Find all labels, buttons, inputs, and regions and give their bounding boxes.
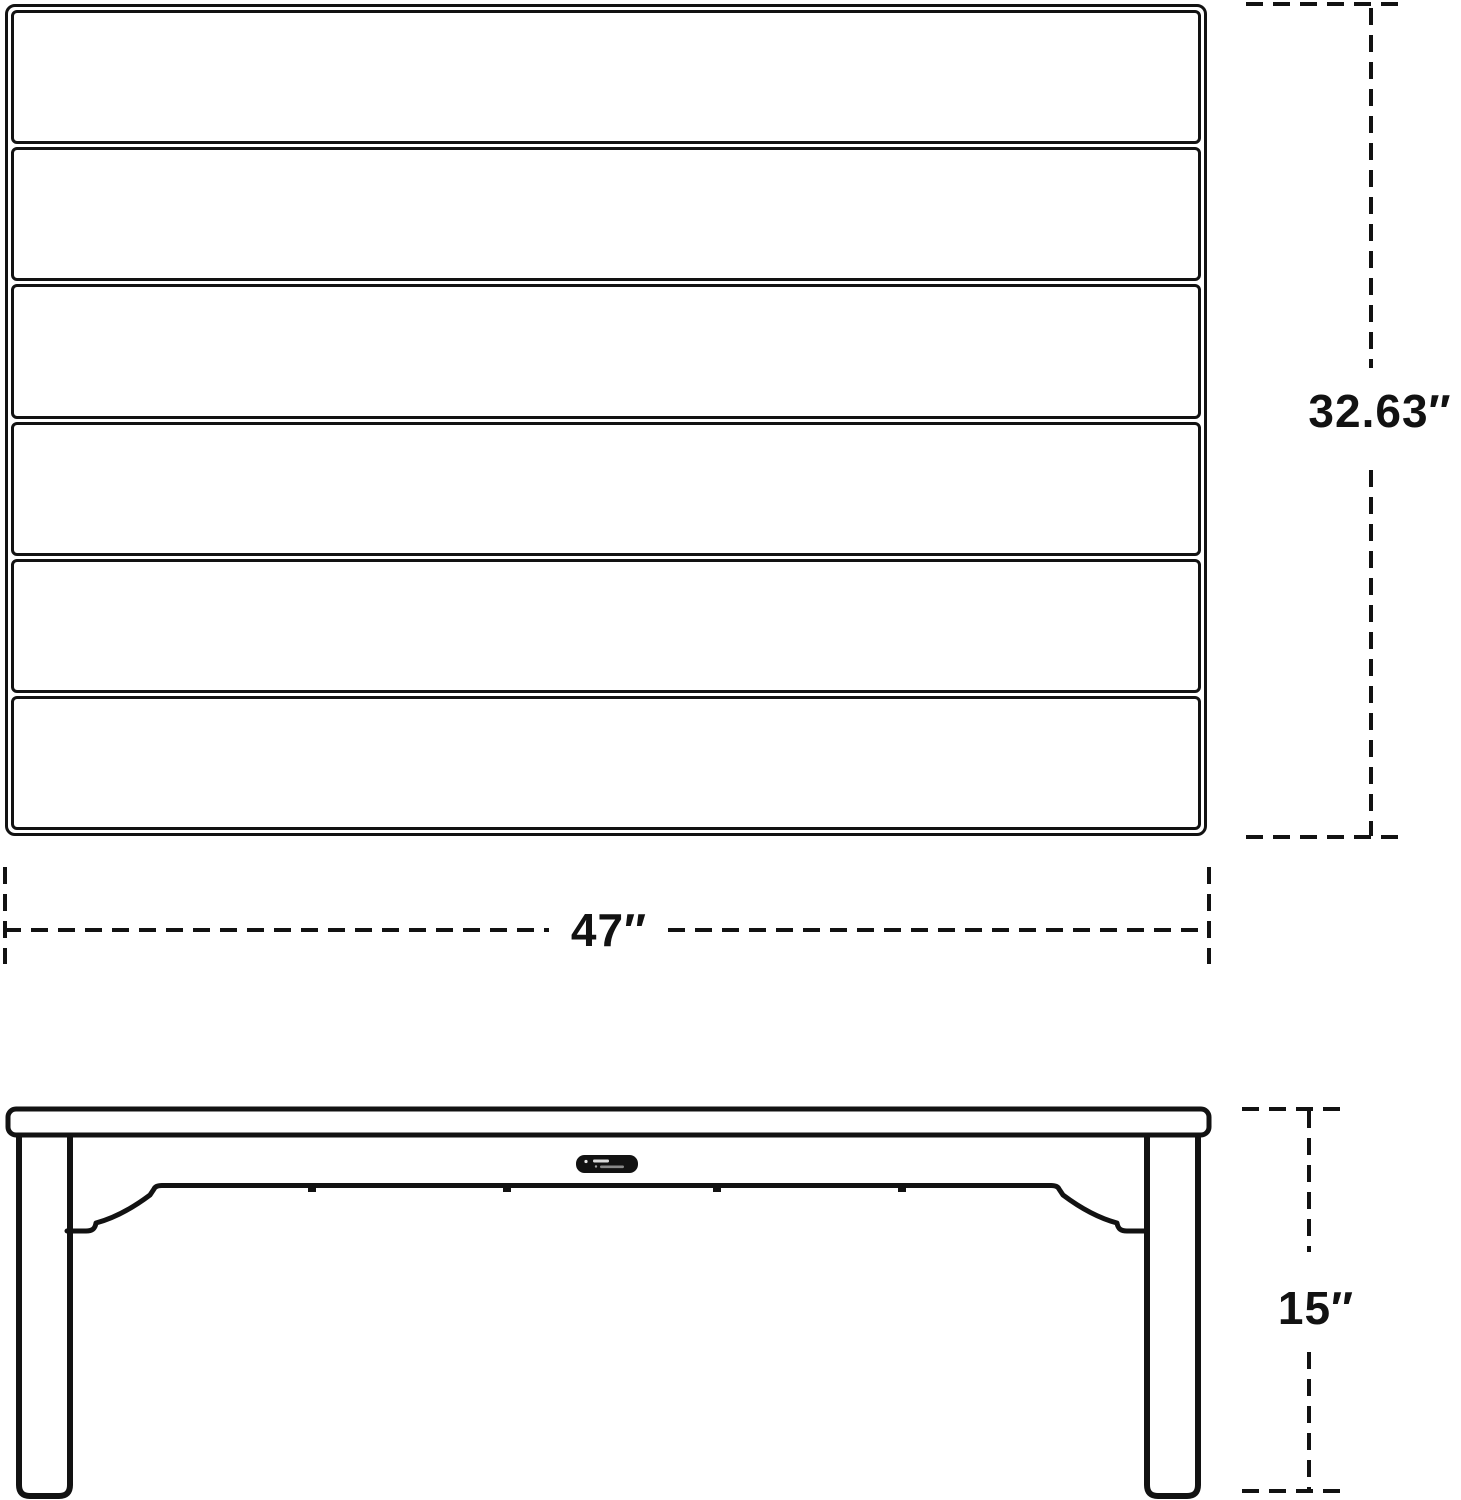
height-dimension-line-upper: [1307, 1111, 1311, 1252]
depth-extension-line-bottom: [1246, 835, 1402, 839]
apron-joint-notch: [308, 1186, 316, 1192]
tabletop-slat: [11, 696, 1201, 830]
height-extension-line-bottom: [1242, 1489, 1346, 1493]
height-dimension-label: 15″: [1262, 1285, 1370, 1331]
apron-joint-notch: [898, 1186, 906, 1192]
width-dimension-line-left: [4, 928, 549, 932]
height-dimension-line-lower: [1307, 1352, 1311, 1492]
table-side-view: [0, 1060, 1461, 1500]
depth-dimension-line-lower: [1369, 470, 1373, 836]
width-dimension-line-right: [668, 928, 1211, 932]
tabletop-slat: [11, 559, 1201, 693]
tabletop-slat: [11, 147, 1201, 281]
apron-joint-notch: [713, 1186, 721, 1192]
depth-dimension-label: 32.63″: [1292, 388, 1461, 434]
depth-dimension-line-upper: [1369, 8, 1373, 368]
width-extension-line-right: [1207, 867, 1211, 964]
tabletop-side-profile: [8, 1109, 1209, 1135]
diagram-canvas: 32.63″ 47″ 1: [0, 0, 1461, 1500]
tabletop-slat: [11, 284, 1201, 418]
brand-badge: [576, 1155, 638, 1173]
width-dimension-label: 47″: [553, 907, 665, 953]
side-right-leg: [1147, 1122, 1198, 1496]
tabletop-slat: [11, 10, 1201, 144]
side-apron: [67, 1186, 1146, 1232]
tabletop-slat: [11, 422, 1201, 556]
tabletop-top-view: [5, 4, 1207, 836]
depth-extension-line-top: [1246, 2, 1402, 6]
height-extension-line-top: [1242, 1107, 1346, 1111]
apron-joint-notch: [503, 1186, 511, 1192]
width-extension-line-left: [3, 867, 7, 964]
side-left-leg: [19, 1122, 70, 1496]
